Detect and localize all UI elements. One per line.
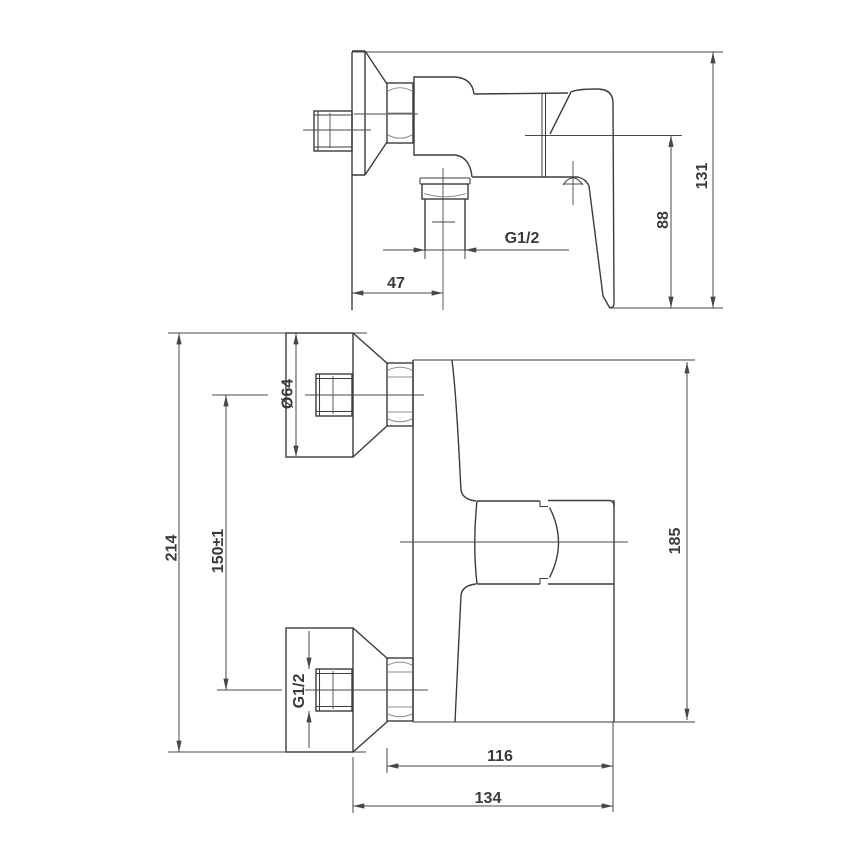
body-shoulder-curves bbox=[455, 77, 474, 177]
technical-drawing: G1/2 47 131 88 bbox=[0, 0, 868, 868]
lower-inlet bbox=[217, 628, 428, 752]
body-barrel-edges bbox=[472, 93, 578, 177]
nipple-outline bbox=[314, 111, 352, 151]
body-silhouette-lower bbox=[455, 584, 476, 722]
dim-label-214: 214 bbox=[164, 535, 181, 562]
lower-nut-chamfer-arcs bbox=[388, 662, 412, 717]
dim-label-outlet-thread: G1/2 bbox=[505, 230, 540, 247]
wall-nipple-side bbox=[314, 111, 352, 151]
outlet-connection-side bbox=[420, 178, 470, 259]
handle-outline bbox=[550, 89, 614, 308]
lower-hex-nut bbox=[387, 658, 413, 721]
handle-collar-edges bbox=[477, 501, 540, 584]
outlet-pipe-extension-stubs bbox=[425, 251, 465, 259]
nipple-thread-lines bbox=[314, 115, 352, 147]
handle-collar-base-arc bbox=[475, 501, 477, 584]
handle-collar-steps bbox=[540, 501, 548, 584]
inlet-block-outline bbox=[414, 77, 455, 155]
dim-label-88: 88 bbox=[655, 211, 672, 229]
dim-label-185: 185 bbox=[667, 528, 684, 555]
side-view-drawing: G1/2 47 131 88 bbox=[303, 51, 723, 310]
lower-inlet-axis bbox=[217, 671, 428, 709]
escutcheon-side bbox=[352, 51, 387, 175]
dim-label-d64: Ø64 bbox=[280, 379, 297, 409]
body-silhouette-upper bbox=[452, 360, 476, 501]
front-view-drawing: 214 150±1 Ø64 G1/2 185 116 134 bbox=[164, 333, 696, 813]
dim-label-inlet-thread: G1/2 bbox=[291, 674, 308, 709]
front-view-dimensions: 214 150±1 Ø64 G1/2 185 116 134 bbox=[164, 333, 688, 807]
outlet-washer-lines bbox=[420, 178, 470, 184]
side-view-center-lines bbox=[303, 113, 682, 310]
upper-nut-chamfer-arcs bbox=[388, 367, 412, 422]
dim-label-116: 116 bbox=[487, 748, 513, 765]
dim-label-134: 134 bbox=[475, 790, 502, 807]
upper-inlet bbox=[212, 333, 424, 457]
upper-inlet-axis bbox=[212, 376, 424, 414]
dim-label-131: 131 bbox=[694, 163, 711, 190]
side-view-dimensions: G1/2 47 131 88 bbox=[352, 52, 713, 308]
body-top-bottom-edges bbox=[413, 360, 695, 722]
lower-nut-face-lines bbox=[387, 672, 413, 707]
outlet-nut-chamfer-arc bbox=[424, 194, 466, 197]
upper-nut-face-lines bbox=[387, 377, 413, 412]
dim-label-150: 150±1 bbox=[210, 529, 227, 573]
lever-handle-side bbox=[550, 89, 614, 308]
hex-nut-side bbox=[387, 83, 413, 143]
mixer-body-front bbox=[400, 360, 695, 722]
outlet-pipe-walls bbox=[425, 199, 465, 251]
dim-label-47: 47 bbox=[387, 275, 405, 292]
escutcheon-edges bbox=[352, 51, 365, 175]
handle-cap-crosshair bbox=[564, 161, 583, 205]
escutcheon-cone-slants bbox=[365, 51, 387, 175]
upper-hex-nut bbox=[387, 363, 413, 426]
handle-lever-arc bbox=[550, 508, 559, 578]
